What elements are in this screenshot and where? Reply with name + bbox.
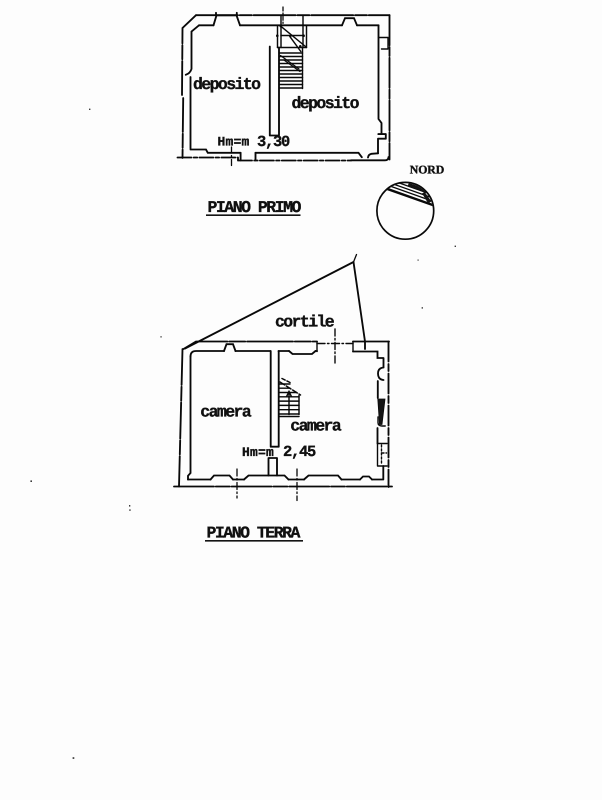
svg-text:3,30: 3,30 xyxy=(257,133,290,151)
svg-text:camera: camera xyxy=(200,403,252,422)
svg-text:cortile: cortile xyxy=(275,313,335,332)
svg-text:PIANO TERRA: PIANO TERRA xyxy=(207,524,301,543)
svg-text:deposito: deposito xyxy=(292,94,360,113)
svg-text:camera: camera xyxy=(290,417,342,436)
svg-text:2,45: 2,45 xyxy=(283,443,316,461)
svg-text:NORD: NORD xyxy=(410,163,444,177)
svg-text:PIANO PRIMO: PIANO PRIMO xyxy=(208,198,302,217)
svg-text:Hm=m: Hm=m xyxy=(218,135,250,150)
svg-text:Hm=m: Hm=m xyxy=(242,445,274,460)
svg-text:deposito: deposito xyxy=(193,75,261,94)
